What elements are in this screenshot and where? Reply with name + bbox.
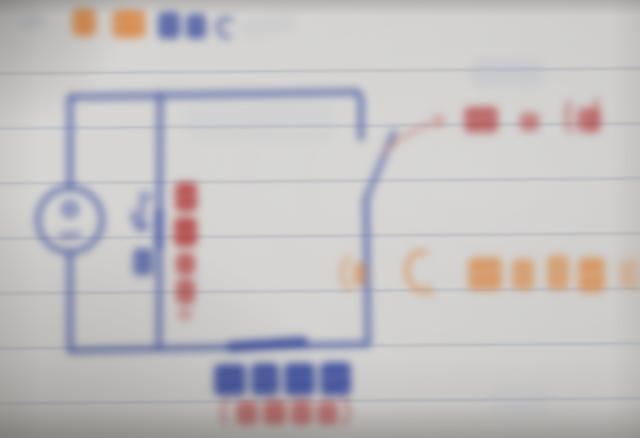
title-orange-word xyxy=(72,9,146,38)
bottom-component xyxy=(231,342,303,347)
pencil-smudge-top-right xyxy=(470,58,544,88)
title-ink-smear xyxy=(239,12,297,40)
notebook-photo: 直流回路C xyxy=(0,0,640,438)
bottom-label-red xyxy=(223,399,349,425)
bottom-label-blue xyxy=(214,362,351,396)
title-blue-word xyxy=(158,12,206,39)
switch-upper-stub xyxy=(357,92,361,135)
branch-label-red-vertical xyxy=(174,182,197,320)
pencil-smudge-inside-circuit xyxy=(186,104,334,140)
title-suffix-c xyxy=(218,19,231,37)
bottom-wire xyxy=(70,344,368,351)
right-wire xyxy=(366,199,368,344)
switch-contact-dot xyxy=(358,135,364,141)
voltage-source-terminal-bottom xyxy=(61,235,79,236)
switch-note-red xyxy=(384,100,601,153)
branch-label-blue xyxy=(133,193,153,276)
top-wire xyxy=(70,92,357,97)
pencil-smudge-bottom-right xyxy=(492,390,552,414)
capacitor-note-orange xyxy=(342,252,639,295)
handwritten-ink-layer xyxy=(0,0,640,438)
title-marker-prefix xyxy=(20,13,46,29)
voltage-source xyxy=(38,188,102,252)
voltage-source-terminal-top xyxy=(64,203,76,215)
switch-blade xyxy=(366,132,394,199)
